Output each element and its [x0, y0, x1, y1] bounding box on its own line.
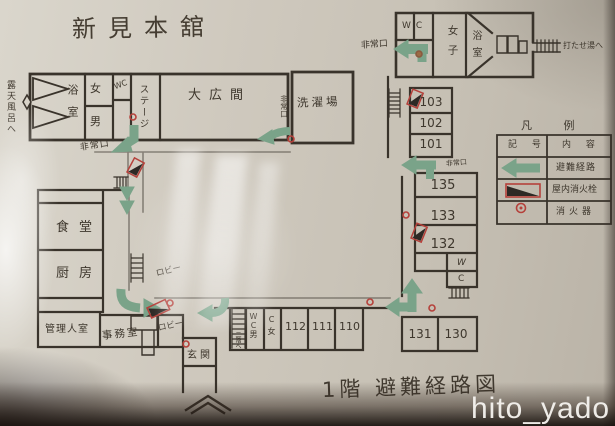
legend-fire-extinguisher-icon	[517, 204, 526, 213]
evacuation-arrow	[394, 40, 428, 62]
stairs-up-note: 二階へ	[234, 331, 240, 349]
evacuation-arrow	[198, 298, 225, 321]
room-label-bath: 浴室	[67, 84, 78, 128]
floorplan-photo: 新見本舘 1階 避難経路図 露天風呂へ 浴室 女 男 WC ステージ 大広間 洗…	[0, 0, 615, 426]
legend-indoor-hydrant-icon	[506, 184, 540, 197]
fire-extinguisher-icon	[429, 305, 435, 311]
exit-label-laundry: 非常口	[280, 95, 288, 118]
room-label-wc-north: WC	[402, 22, 427, 31]
stairs-icon	[389, 89, 400, 117]
room-label-dining: 食堂	[56, 221, 102, 234]
room-label-women: 女	[90, 83, 101, 94]
evacuation-arrow	[386, 279, 422, 316]
room-number-103: 103	[418, 96, 444, 108]
fire-extinguisher-icon	[367, 299, 373, 305]
room-number-111: 111	[310, 321, 335, 332]
legend-row-hydrant-label: 屋内消火栓	[552, 186, 597, 195]
exit-label-north: 非常口	[361, 40, 389, 51]
room-number-110: 110	[337, 321, 362, 332]
legend-col-content: 内 容	[562, 141, 601, 150]
building-title: 新見本舘	[72, 15, 216, 42]
evacuation-arrow	[258, 130, 290, 144]
route-to-rotenburo-label: 露天風呂へ	[5, 80, 14, 135]
evacuation-arrow	[120, 187, 134, 214]
room-number-112: 112	[283, 321, 308, 332]
fire-extinguisher-icon	[167, 300, 173, 306]
room-label-men: 男	[90, 116, 101, 127]
stairs-icon	[449, 288, 469, 298]
indoor-hydrant-icon	[127, 158, 144, 177]
room-label-wc-mid-c: C	[458, 275, 464, 284]
legend-evacuation-arrow	[502, 159, 540, 177]
room-number-131: 131	[406, 328, 434, 340]
locker-shapes	[497, 36, 527, 53]
fire-extinguisher-icon	[416, 51, 422, 57]
legend-row-evacuation-label: 避難経路	[556, 164, 596, 173]
evacuation-arrows	[112, 40, 540, 321]
room-label-wc-south-women: C女	[267, 315, 275, 338]
stairs-icon	[114, 177, 128, 188]
room-number-133: 133	[428, 210, 458, 223]
entrance-porch	[186, 396, 230, 413]
evacuation-arrow	[402, 156, 436, 179]
room-label-laundry: 洗濯場	[297, 96, 341, 109]
room-number-130: 130	[442, 328, 470, 340]
evacuation-arrow	[112, 125, 134, 152]
room-number-135: 135	[428, 179, 458, 192]
room-label-women-north: 女子	[447, 25, 458, 64]
room-label-wc-mid-w: W	[457, 259, 466, 268]
room-label-entrance: 玄関	[187, 351, 213, 361]
room-label-bath-north: 浴室	[470, 30, 480, 64]
stairs-icon	[537, 40, 557, 52]
room-label-large-hall: 大広間	[188, 89, 251, 102]
fire-extinguisher-icon	[403, 212, 409, 218]
room-number-132: 132	[428, 238, 458, 251]
room-label-wc-south-men: WC男	[249, 312, 257, 338]
room-label-manager: 管理人室	[45, 325, 89, 335]
bathtub-shapes	[33, 78, 68, 128]
room-number-101: 101	[418, 138, 444, 150]
stairs-icon	[131, 254, 143, 282]
route-to-utaseyu-label: 打たせ湯へ	[563, 42, 603, 50]
room-label-kitchen: 厨房	[56, 267, 102, 280]
legend-row-extinguisher-label: 消火器	[556, 208, 595, 217]
floorplan-drawing	[0, 0, 615, 426]
room-number-102: 102	[418, 117, 444, 129]
legend-title: 凡 例	[521, 120, 589, 131]
room-label-stage: ステージ	[138, 84, 148, 130]
watermark: hito_yado	[471, 392, 610, 426]
legend-col-symbol: 記 号	[508, 141, 547, 150]
